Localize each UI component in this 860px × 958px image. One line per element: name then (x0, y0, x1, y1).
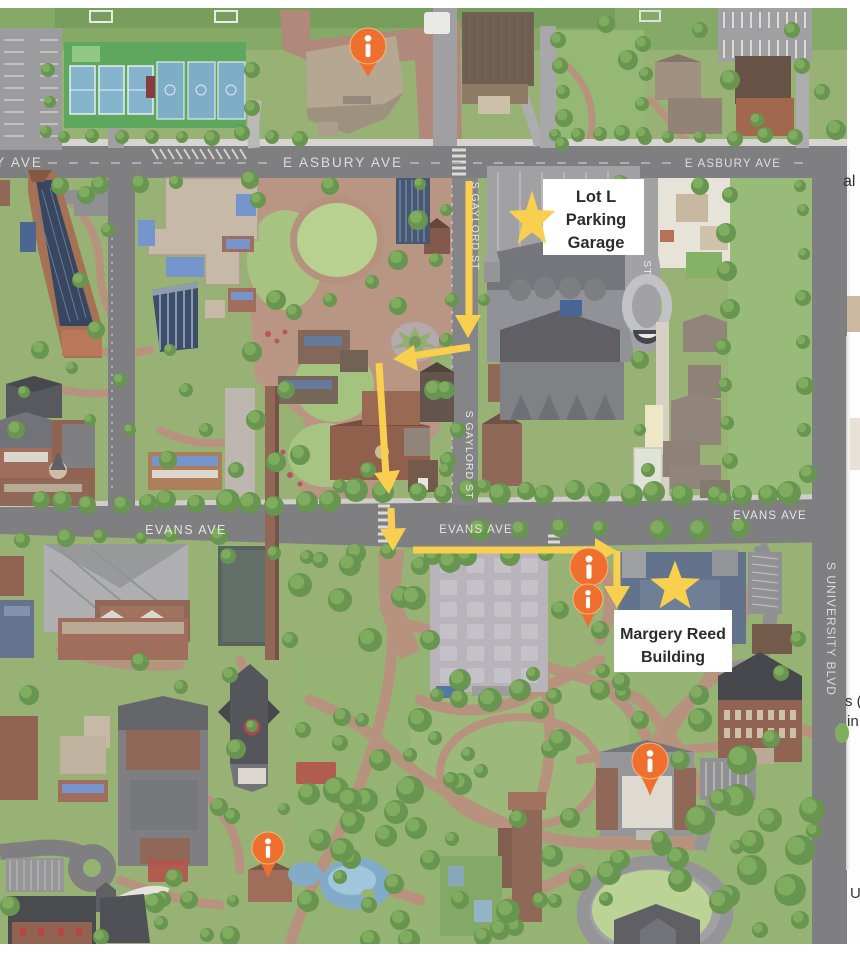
svg-text:al: al (843, 173, 855, 190)
svg-text:U: U (850, 885, 860, 902)
svg-text:in: in (847, 713, 859, 730)
svg-text:s (: s ( (845, 693, 860, 710)
